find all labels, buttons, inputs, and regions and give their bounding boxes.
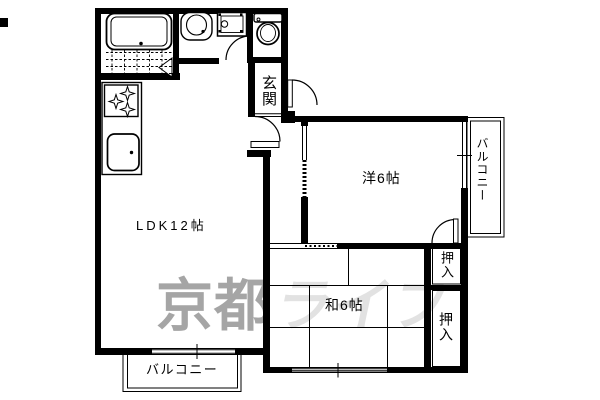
doors [159, 36, 458, 243]
floorplan-drawing [0, 0, 600, 400]
balcony-label-bottom: バルコニー [146, 363, 218, 377]
bathtub-icon [107, 14, 172, 50]
walls [0, 8, 468, 373]
kitchen-sink-icon [108, 134, 140, 171]
door-swing-arc [251, 117, 280, 148]
window-symbol [292, 363, 387, 378]
bath-tile-floor [106, 50, 173, 77]
door-swing-arc [226, 36, 251, 60]
balcony-label-right: バルコニー [476, 137, 488, 202]
window-symbol [301, 126, 308, 197]
floorplan: 京都ライフ [0, 0, 600, 400]
room-opening [270, 244, 337, 248]
door-swing-arc [288, 80, 317, 107]
washbasin-icon [181, 13, 212, 41]
room-label-japanese-room: 和6帖 [325, 298, 364, 313]
window-symbol [457, 122, 472, 188]
edge-artifact [0, 18, 8, 27]
room-label-entrance: 玄関 [261, 75, 276, 107]
room-label-ldk: LDK12帖 [136, 219, 207, 233]
gas-stove-icon [105, 85, 139, 117]
toilet-icon [254, 14, 282, 45]
room-label-western-room: 洋6帖 [362, 171, 401, 186]
entrance-step [255, 114, 281, 117]
closet-label-lower: 押入 [439, 312, 453, 342]
door-swing-arc [432, 219, 458, 243]
window-symbol [152, 344, 235, 359]
washing-machine-pan-icon [218, 13, 247, 37]
closet-label-upper: 押入 [440, 251, 453, 279]
